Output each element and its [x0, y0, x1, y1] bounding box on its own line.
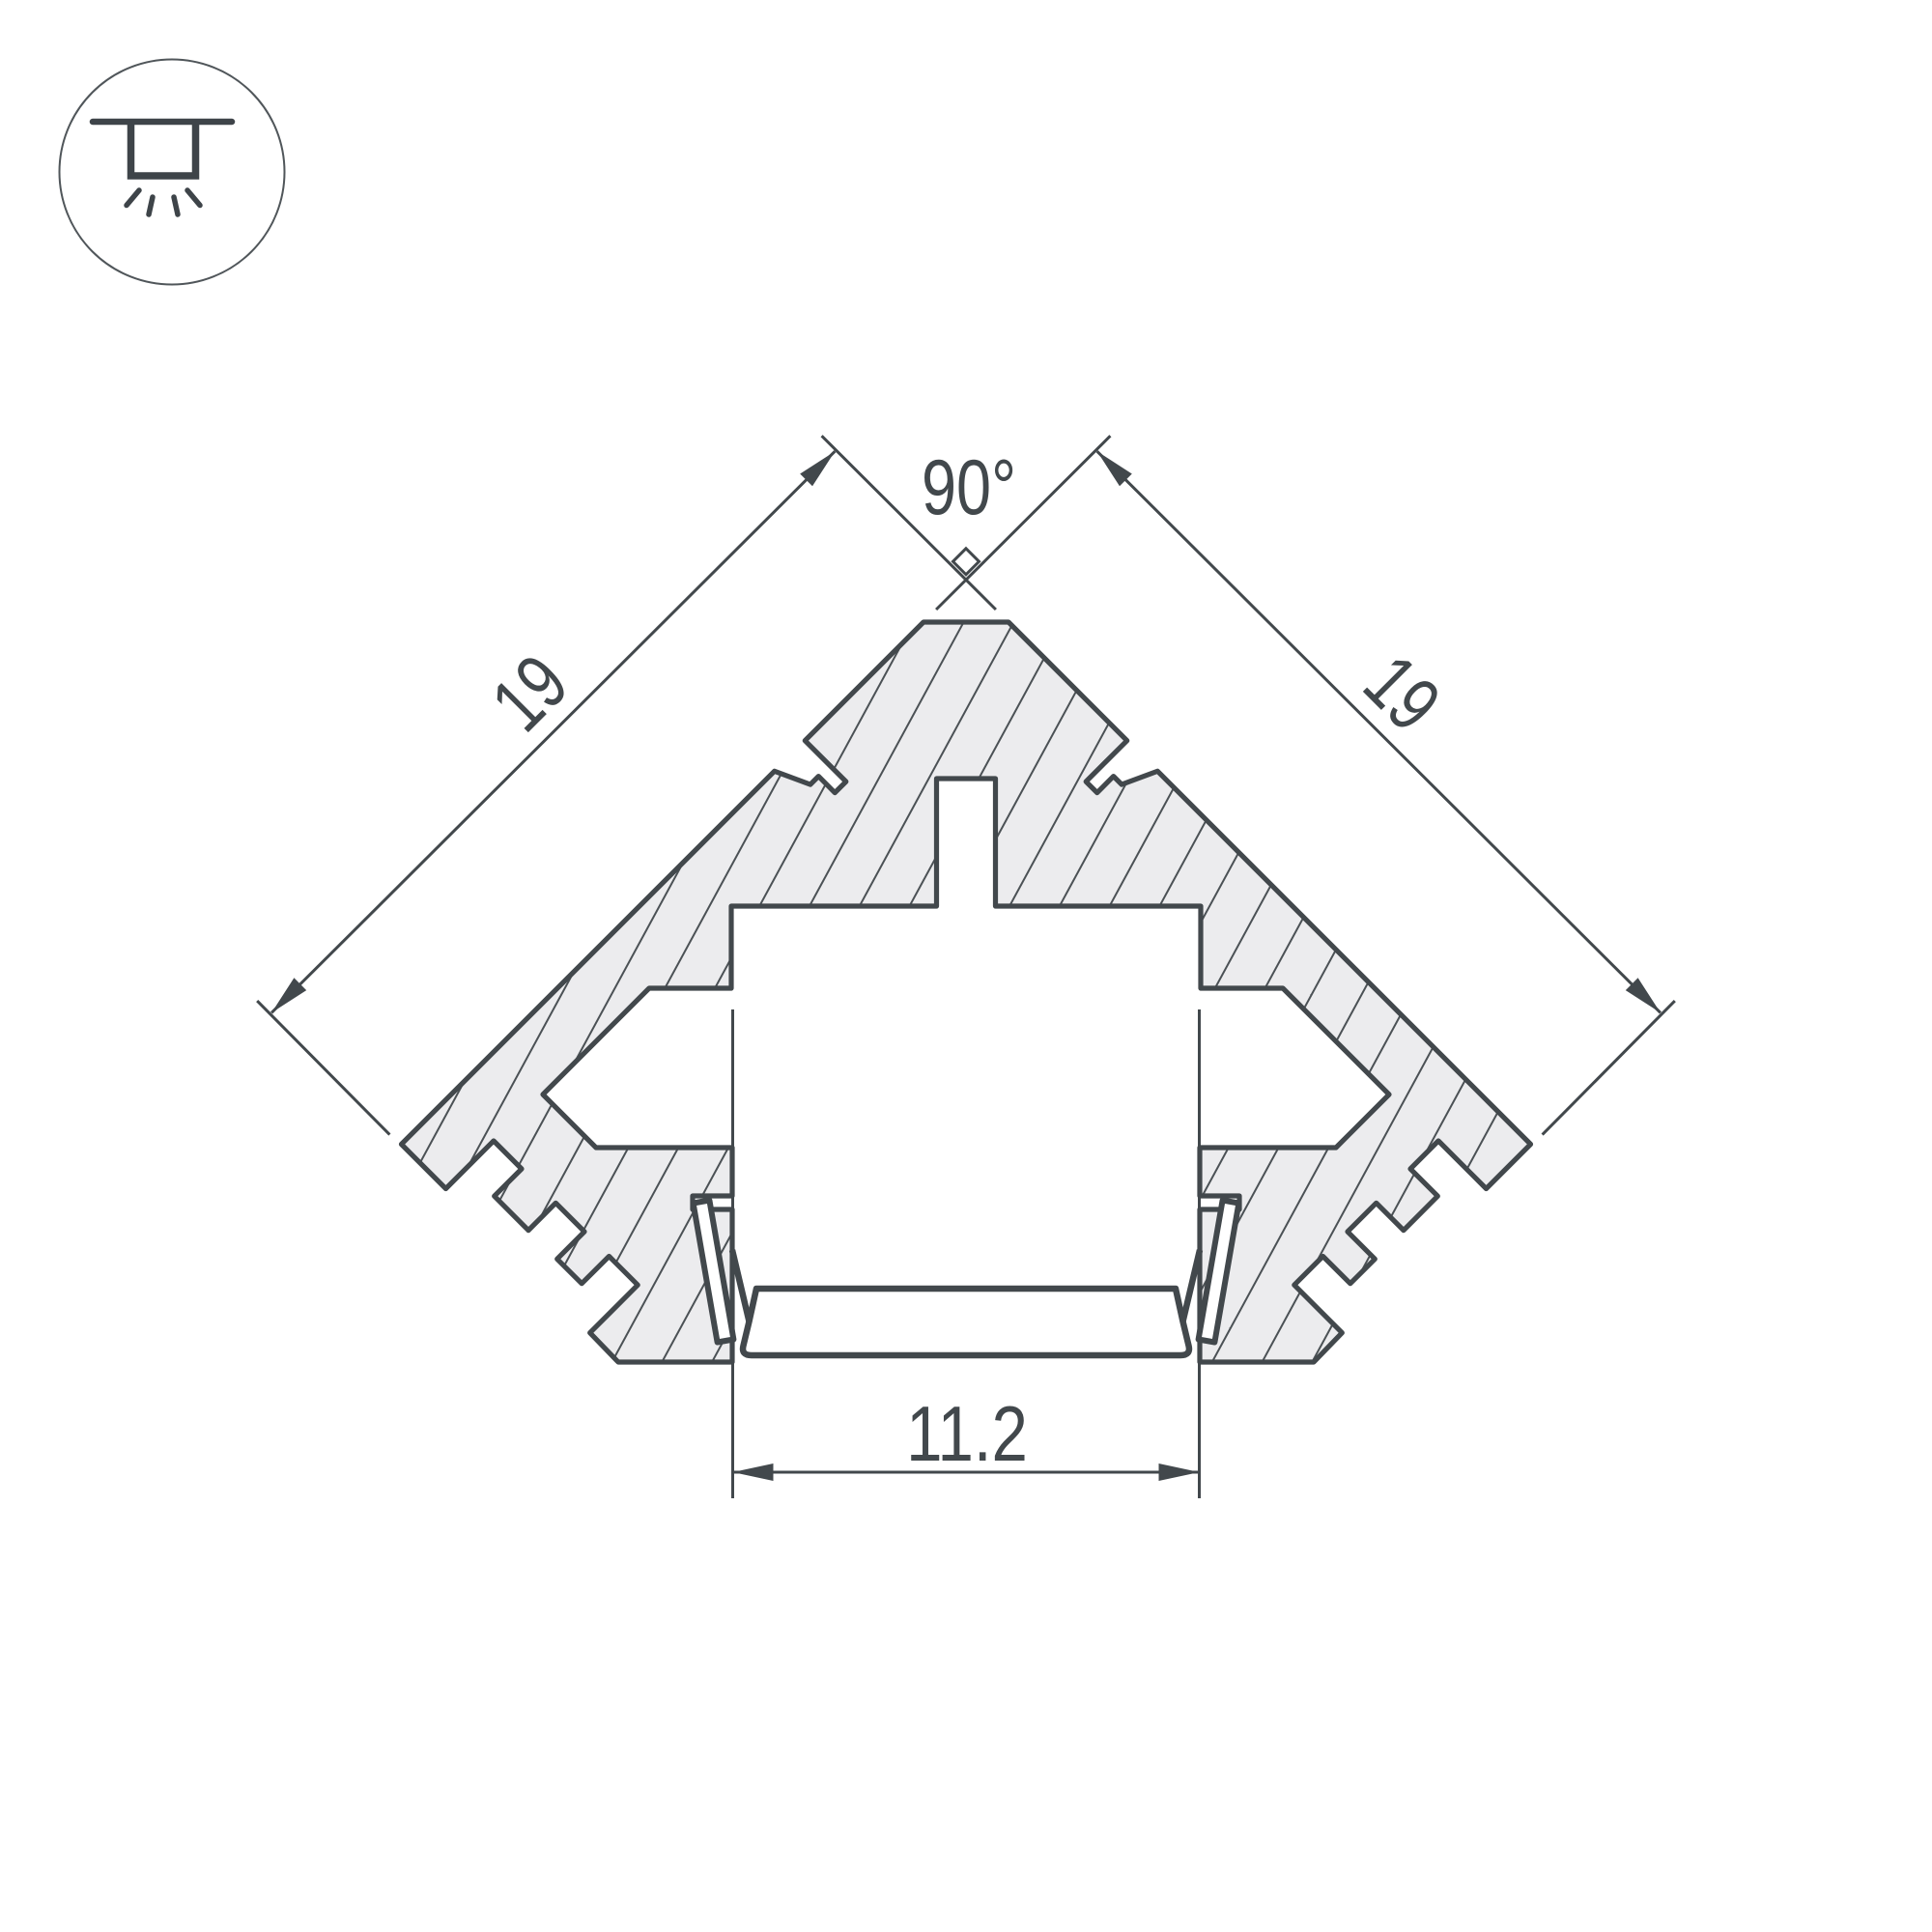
svg-text:90°: 90°	[922, 443, 1016, 531]
svg-text:11.2: 11.2	[906, 1390, 1028, 1477]
